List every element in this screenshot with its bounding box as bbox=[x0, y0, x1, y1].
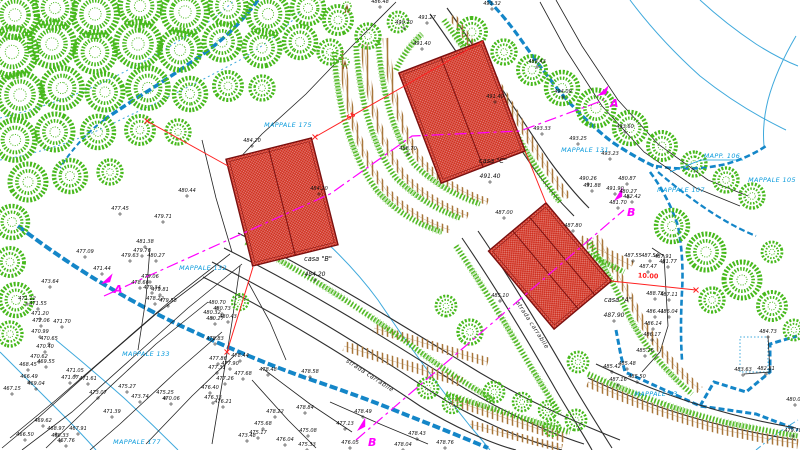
tree-crown bbox=[480, 378, 507, 405]
spot-elevation-tick bbox=[185, 194, 189, 198]
spot-elevation-label: 490.70 bbox=[395, 20, 413, 26]
spot-elevation-tick bbox=[648, 259, 652, 263]
tree-crown bbox=[248, 74, 276, 102]
spot-elevation-label: 493.25 bbox=[569, 136, 587, 142]
tree-crown bbox=[95, 157, 124, 186]
parcel-label: MAPPALE 131 bbox=[561, 146, 609, 154]
tree-core bbox=[106, 168, 114, 176]
spot-elevation-label: 473.48 bbox=[238, 433, 256, 439]
tree-crown bbox=[535, 397, 560, 422]
spot-elevation-label: 470.06 bbox=[162, 396, 180, 402]
tree-core bbox=[468, 28, 476, 36]
spot-elevation-label: 478.84 bbox=[296, 405, 314, 411]
spot-elevation-tick bbox=[653, 297, 657, 301]
spot-elevation-label: 477.45 bbox=[111, 206, 129, 212]
spot-elevation-label: 487.80 bbox=[564, 223, 582, 229]
tree-icon bbox=[120, 60, 175, 115]
tree-crown bbox=[208, 0, 247, 26]
tree-inner bbox=[36, 28, 68, 60]
tree-core bbox=[185, 89, 195, 99]
stream-thin bbox=[764, 36, 797, 146]
parcel-label: MAPPALE 105 bbox=[748, 176, 796, 184]
spot-elevation-label: 473.07 bbox=[89, 390, 107, 396]
tree-icon bbox=[480, 378, 507, 405]
spot-elevation-tick bbox=[616, 206, 620, 210]
tree-inner bbox=[440, 300, 453, 313]
tree-core bbox=[3, 43, 21, 61]
section-letter: A bbox=[609, 97, 619, 110]
tree-inner bbox=[216, 74, 240, 98]
tree-core bbox=[47, 0, 63, 16]
spot-elevation-label: 476.21 bbox=[214, 399, 232, 405]
spot-elevation-label: 481.38 bbox=[136, 239, 154, 245]
red-tie-line bbox=[227, 267, 253, 352]
spot-elevation-label: 478.49 bbox=[354, 409, 372, 415]
spot-elevation-label: 477.09 bbox=[76, 249, 94, 255]
spot-elevation-label: 485.42 bbox=[603, 364, 621, 370]
tree-crown bbox=[31, 108, 80, 157]
spot-elevation-label: 486.48 bbox=[371, 0, 389, 5]
spot-elevation-label: 493.33 bbox=[533, 126, 551, 132]
spot-elevation-tick bbox=[223, 382, 227, 386]
spot-elevation-tick bbox=[250, 144, 254, 148]
tree-icon bbox=[208, 0, 247, 26]
spot-elevation-tick bbox=[666, 265, 670, 269]
spot-elevation-tick bbox=[608, 157, 612, 161]
tree-core bbox=[55, 81, 69, 95]
spot-elevation-label: 484.20 bbox=[243, 138, 261, 144]
spot-elevation-label: 468.97 bbox=[47, 426, 65, 432]
tree-core bbox=[737, 275, 748, 286]
spot-elevation-tick bbox=[138, 286, 142, 290]
spot-elevation-tick bbox=[138, 400, 142, 404]
tree-icon bbox=[120, 110, 160, 150]
spot-elevation-tick bbox=[161, 220, 165, 224]
spot-elevation-tick bbox=[10, 392, 14, 396]
tree-inner bbox=[760, 294, 784, 318]
spot-elevation-tick bbox=[502, 216, 506, 220]
tree-inner bbox=[78, 0, 112, 31]
tree-inner bbox=[570, 354, 586, 370]
tree-inner bbox=[1, 1, 28, 28]
spot-elevation-tick bbox=[306, 434, 310, 438]
spot-elevation-label: 480.87 bbox=[618, 176, 636, 182]
tree-core bbox=[768, 248, 775, 255]
spot-elevation-label: 483.63 bbox=[734, 367, 752, 373]
spot-elevation-tick bbox=[118, 212, 122, 216]
spot-elevation-label: 477.68 bbox=[234, 371, 252, 377]
tree-core bbox=[574, 358, 581, 365]
spot-elevation-label: 473.74 bbox=[131, 394, 149, 400]
tree-crown bbox=[208, 66, 248, 106]
tree-core bbox=[303, 3, 314, 14]
spot-elevation-label: 471.39 bbox=[103, 409, 121, 415]
tree-inner bbox=[101, 163, 119, 181]
tree-core bbox=[327, 49, 334, 56]
tree-inner bbox=[13, 167, 43, 197]
tree-crown bbox=[753, 287, 792, 326]
spot-elevation-label: 479.58 bbox=[159, 298, 177, 304]
spot-elevation-label: 466.50 bbox=[16, 432, 34, 438]
spot-elevation-tick bbox=[154, 259, 158, 263]
spot-elevation-tick bbox=[215, 371, 219, 375]
spot-elevation-label: 471.70 bbox=[53, 319, 71, 325]
tree-inner bbox=[296, 0, 319, 20]
tree-core bbox=[260, 6, 276, 22]
spot-elevation-label: 481.70 bbox=[609, 200, 627, 206]
tree-core bbox=[134, 124, 145, 135]
red-x-mark bbox=[313, 135, 318, 140]
spot-elevation-label: 469.62 bbox=[34, 418, 52, 424]
tree-crown bbox=[49, 155, 91, 197]
tree-icon bbox=[642, 126, 682, 166]
spot-elevation-label: 477.26 bbox=[216, 376, 234, 382]
spot-elevation-label: 468.45 bbox=[19, 362, 37, 368]
spot-elevation-tick bbox=[23, 438, 27, 442]
tree-icon bbox=[80, 114, 117, 151]
tree-core bbox=[519, 399, 525, 405]
tree-core bbox=[699, 245, 713, 259]
spot-elevation-tick bbox=[348, 446, 352, 450]
tree-core bbox=[48, 125, 62, 139]
tree-crown bbox=[114, 0, 166, 32]
tree-inner bbox=[660, 214, 684, 238]
tree-inner bbox=[730, 268, 753, 291]
tree-core bbox=[174, 128, 181, 135]
house-building bbox=[226, 138, 338, 266]
spot-elevation-label: 472.06 bbox=[32, 318, 50, 324]
tree-crown bbox=[0, 113, 42, 166]
tree-icon bbox=[165, 119, 192, 146]
spot-elevation-tick bbox=[256, 436, 260, 440]
spot-elevation-tick bbox=[41, 424, 45, 428]
spot-elevation-label: 484.73 bbox=[759, 329, 777, 335]
tree-core bbox=[87, 44, 103, 60]
spot-elevation-tick bbox=[590, 189, 594, 193]
spot-elevation-label: 475.33 bbox=[298, 442, 316, 448]
spot-elevation-label: 470.40 bbox=[36, 344, 54, 350]
tree-icon bbox=[31, 108, 80, 157]
spot-elevation-tick bbox=[86, 382, 90, 386]
spot-elevation-label: 471.44 bbox=[93, 266, 111, 272]
house-name-label: casa "B" bbox=[304, 255, 332, 263]
spot-elevation-label: 487.47 bbox=[639, 264, 657, 270]
spot-elevation-label: 490.26 bbox=[579, 176, 597, 182]
tree-inner bbox=[359, 27, 378, 46]
spot-elevation-tick bbox=[667, 298, 671, 302]
spot-elevation-label: 470.99 bbox=[31, 329, 49, 335]
tree-crown bbox=[681, 227, 732, 278]
spot-elevation-label: 491.27 bbox=[418, 15, 436, 21]
house-name-label: casa "A" bbox=[604, 296, 632, 304]
tree-inner bbox=[253, 79, 271, 97]
tree-core bbox=[133, 0, 147, 13]
spot-elevation-tick bbox=[48, 285, 52, 289]
boundary-line bbox=[248, 282, 286, 360]
parcel-label: MAPP. 106 bbox=[704, 152, 741, 160]
tree-icon bbox=[208, 66, 248, 106]
tree-core bbox=[177, 4, 194, 21]
tree-icon bbox=[68, 0, 122, 41]
tree-crown bbox=[697, 285, 728, 316]
spot-elevation-tick bbox=[68, 381, 72, 385]
spot-elevation-label: 478.76 bbox=[436, 440, 454, 446]
spot-elevation-label: 479.71 bbox=[154, 214, 172, 220]
tree-inner bbox=[123, 29, 153, 59]
tree-icon bbox=[759, 239, 784, 264]
spot-elevation-label: 469.04 bbox=[27, 381, 45, 387]
spot-elevation-label: 487.11 bbox=[660, 292, 678, 298]
spot-elevation-label: 484.20 bbox=[310, 186, 328, 192]
spot-elevation-label: 471.61 bbox=[79, 376, 97, 382]
spot-elevation-tick bbox=[153, 302, 157, 306]
tree-icon bbox=[114, 20, 162, 68]
spot-elevation-tick bbox=[64, 444, 68, 448]
tree-icon bbox=[535, 397, 560, 422]
tree-icon bbox=[512, 392, 532, 412]
tree-inner bbox=[0, 124, 31, 157]
tree-crown bbox=[0, 248, 24, 277]
spot-elevation-label: 467.15 bbox=[3, 386, 21, 392]
house-name-label: casa "C" bbox=[479, 157, 507, 165]
house-elevation-tick bbox=[488, 180, 492, 184]
spot-elevation-tick bbox=[425, 21, 429, 25]
tree-icon bbox=[681, 227, 732, 278]
tree-icon bbox=[95, 157, 124, 186]
tree-icon bbox=[240, 0, 296, 42]
tree-inner bbox=[47, 73, 78, 104]
spot-elevation-label: 478.04 bbox=[394, 442, 412, 448]
spot-elevation-label: 470.65 bbox=[40, 336, 58, 342]
spot-elevation-label: 476.04 bbox=[276, 437, 294, 443]
spot-elevation-label: 475.68 bbox=[254, 421, 272, 427]
tree-core bbox=[8, 133, 23, 148]
spot-elevation-label: 476.40 bbox=[201, 385, 219, 391]
spot-elevation-label: 480.04 bbox=[786, 397, 800, 403]
tree-icon bbox=[723, 261, 761, 299]
parcel-label: MAPPALE 132 bbox=[179, 264, 227, 272]
spot-elevation-label: 477.31 bbox=[208, 365, 226, 371]
section-letter: A bbox=[113, 283, 123, 296]
tree-icon bbox=[114, 0, 166, 32]
tree-core bbox=[333, 15, 343, 25]
boundary-line bbox=[202, 140, 232, 252]
spot-elevation-tick bbox=[630, 200, 634, 204]
tree-core bbox=[99, 86, 112, 99]
spot-elevation-tick bbox=[378, 5, 382, 9]
spot-elevation-tick bbox=[125, 390, 129, 394]
parcel-label: MAPPALE 107 bbox=[657, 186, 705, 194]
tree-icon bbox=[736, 180, 768, 212]
stream-thin bbox=[700, 0, 798, 66]
spot-elevation-label: 471.20 bbox=[31, 311, 49, 317]
spot-elevation-tick bbox=[273, 415, 277, 419]
tree-crown bbox=[0, 319, 25, 349]
tree-crown bbox=[173, 77, 207, 111]
section-letter: B bbox=[627, 206, 635, 219]
tree-core bbox=[6, 258, 14, 266]
spot-elevation-label: 486.04 bbox=[660, 309, 678, 315]
spot-elevation-tick bbox=[221, 405, 225, 409]
house-elevation-label: 491.40 bbox=[480, 173, 501, 180]
tree-crown bbox=[436, 296, 457, 317]
spot-elevation-tick bbox=[343, 427, 347, 431]
spot-elevation-label: 477.13 bbox=[336, 421, 354, 427]
tree-inner bbox=[124, 0, 156, 22]
tree-inner bbox=[516, 396, 528, 408]
red-tie-line bbox=[147, 121, 228, 166]
spot-elevation-tick bbox=[498, 299, 502, 303]
tree-inner bbox=[540, 402, 556, 418]
house-elevation-tick bbox=[612, 319, 616, 323]
tree-core bbox=[721, 175, 730, 184]
tree-inner bbox=[1, 325, 20, 344]
tree-crown bbox=[80, 114, 117, 151]
spot-elevation-label: 478.44 bbox=[231, 353, 249, 359]
tree-icon bbox=[0, 248, 24, 277]
spot-elevation-label: 481.77 bbox=[659, 259, 677, 265]
spot-elevation-tick bbox=[613, 192, 617, 196]
tree-icon bbox=[753, 287, 792, 326]
spot-elevation-label: 471.05 bbox=[66, 368, 84, 374]
tree-core bbox=[45, 37, 59, 51]
spot-elevation-tick bbox=[443, 446, 447, 450]
tree-crown bbox=[780, 316, 800, 344]
tree-crown bbox=[723, 261, 761, 299]
spot-elevation-tick bbox=[226, 320, 230, 324]
tree-icon bbox=[278, 20, 323, 65]
spot-elevation-label: 478.58 bbox=[301, 369, 319, 375]
spot-elevation-label: 485.50 bbox=[628, 374, 646, 380]
spot-elevation-label: 485.10 bbox=[491, 293, 509, 299]
tree-core bbox=[258, 84, 266, 92]
tree-core bbox=[490, 388, 498, 396]
tree-inner bbox=[216, 0, 240, 18]
tree-crown bbox=[642, 126, 682, 166]
tree-icon bbox=[0, 113, 42, 166]
tree-inner bbox=[131, 71, 165, 105]
tree-icon bbox=[436, 296, 457, 317]
tree-inner bbox=[716, 170, 736, 190]
spot-elevation-tick bbox=[625, 182, 629, 186]
spot-elevation-tick bbox=[34, 387, 38, 391]
spot-elevation-label: 487.55 bbox=[624, 253, 642, 259]
spot-elevation-label: 486.17 bbox=[643, 332, 661, 338]
spot-elevation-label: 467.76 bbox=[57, 438, 75, 444]
site-plan: AABB 486.48490.70491.27493.32491.40491.4… bbox=[0, 0, 800, 450]
tree-inner bbox=[703, 291, 722, 310]
spot-elevation-label: 473.64 bbox=[41, 279, 59, 285]
spot-elevation-label: 487.16 bbox=[609, 377, 627, 383]
stream-thin bbox=[630, 0, 786, 130]
tree-crown bbox=[120, 110, 160, 150]
spot-elevation-tick bbox=[60, 325, 64, 329]
spot-elevation-tick bbox=[303, 411, 307, 415]
dimension-text: 10.00 bbox=[638, 271, 659, 280]
spot-elevation-tick bbox=[490, 7, 494, 11]
tree-core bbox=[6, 330, 14, 338]
spot-elevation-label: 480.44 bbox=[178, 188, 196, 194]
spot-elevation-label: 485.48 bbox=[618, 361, 636, 367]
tree-core bbox=[64, 170, 76, 182]
tree-icon bbox=[697, 285, 728, 316]
spot-elevation-tick bbox=[623, 130, 627, 134]
tree-inner bbox=[326, 8, 349, 31]
tree-icon bbox=[565, 349, 592, 376]
spot-elevation-tick bbox=[643, 354, 647, 358]
tree-core bbox=[499, 47, 508, 56]
tree-core bbox=[790, 326, 798, 334]
spot-elevation-tick bbox=[44, 365, 48, 369]
spot-elevation-tick bbox=[110, 415, 114, 419]
spot-elevation-tick bbox=[83, 255, 87, 259]
section-arrow-icon bbox=[354, 418, 370, 433]
spot-elevation-label: 491.40 bbox=[486, 94, 504, 100]
spot-elevation-tick bbox=[140, 254, 144, 258]
tree-core bbox=[748, 192, 757, 201]
tree-inner bbox=[166, 0, 204, 31]
spot-elevation-label: 479.78 bbox=[784, 428, 800, 434]
tree-inner bbox=[40, 117, 70, 147]
tree-icon bbox=[49, 155, 91, 197]
parcel-label: MAPPALE 73 bbox=[634, 390, 677, 398]
tree-icon bbox=[780, 316, 800, 344]
spot-elevation-label: 491.88 bbox=[583, 183, 601, 189]
tree-icon bbox=[173, 77, 207, 111]
spot-elevation-label: 494.09 bbox=[554, 89, 572, 95]
tree-crown bbox=[759, 239, 784, 264]
spot-elevation-tick bbox=[420, 47, 424, 51]
tree-core bbox=[140, 80, 155, 95]
spot-elevation-tick bbox=[283, 443, 287, 447]
house-building bbox=[488, 203, 611, 329]
spot-elevation-tick bbox=[169, 402, 173, 406]
spot-elevation-tick bbox=[213, 322, 217, 326]
spot-elevation-label: 493.32 bbox=[483, 1, 501, 7]
tree-core bbox=[21, 175, 35, 189]
tree-core bbox=[527, 65, 536, 74]
tree-core bbox=[11, 86, 28, 103]
tree-core bbox=[9, 9, 21, 21]
tree-crown bbox=[114, 20, 162, 68]
tree-icon bbox=[0, 199, 35, 244]
tree-crown bbox=[736, 180, 768, 212]
spot-elevation-label: 485.76 bbox=[636, 348, 654, 354]
spot-elevation-label: 488.70 bbox=[399, 146, 417, 152]
spot-elevation-label: 478.83 bbox=[206, 336, 224, 342]
spot-elevation-label: 469.55 bbox=[37, 359, 55, 365]
house-elevation-label: 484.20 bbox=[305, 271, 326, 278]
spot-elevation-label: 488.43 bbox=[528, 59, 546, 65]
tree-icon bbox=[0, 319, 25, 349]
tree-core bbox=[294, 36, 307, 49]
parcel-label: MAPPALE 177 bbox=[113, 438, 161, 446]
tree-crown bbox=[120, 60, 175, 115]
tree-icon bbox=[3, 157, 52, 206]
tree-core bbox=[172, 42, 187, 57]
tree-crown bbox=[68, 0, 122, 41]
spot-elevation-tick bbox=[100, 272, 104, 276]
spot-elevation-label: 471.55 bbox=[29, 301, 47, 307]
spot-elevation-label: 466.49 bbox=[20, 374, 38, 380]
tree-core bbox=[465, 327, 474, 336]
spot-elevation-tick bbox=[540, 132, 544, 136]
plan-svg: AABB 486.48490.70491.27493.32491.40491.4… bbox=[0, 0, 800, 450]
stream bbox=[658, 172, 756, 236]
tree-crown bbox=[0, 199, 35, 244]
spot-elevation-label: 476.05 bbox=[341, 440, 359, 446]
tree-core bbox=[131, 37, 145, 51]
